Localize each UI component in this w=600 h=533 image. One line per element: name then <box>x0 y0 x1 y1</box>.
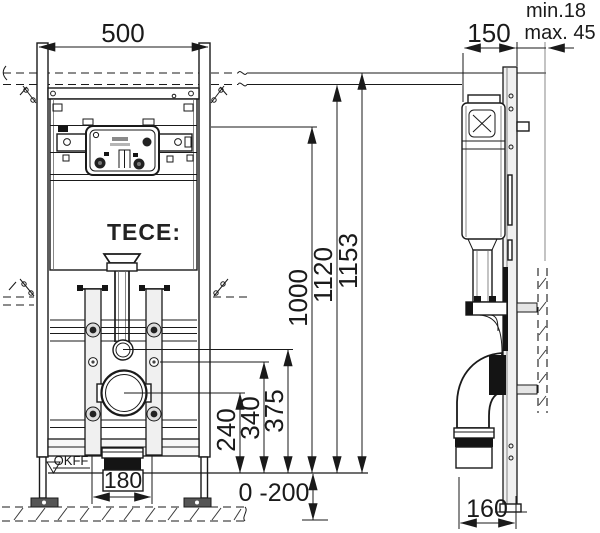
technical-drawing: TECE: <box>0 0 600 533</box>
dim-label-wall-max: max. 45 <box>524 22 595 44</box>
brand-logo: TECE: <box>107 219 181 245</box>
dim-label-height-bracket: 1000 <box>283 269 313 327</box>
side-view <box>454 42 547 512</box>
side-drain-elbow <box>454 353 506 468</box>
dim-label-drain: 240 <box>211 408 241 451</box>
technical-drawing-page: TECE: <box>0 0 600 533</box>
dim-front-width: 500 <box>39 18 208 48</box>
okff-label: OKFF <box>54 453 89 468</box>
wall-hatching-side <box>539 278 546 405</box>
dim-label-front-width: 500 <box>101 18 144 48</box>
ground-hatching <box>14 508 241 520</box>
dim-label-outlet-depth: 160 <box>466 495 508 523</box>
floor-level-mark: OKFF <box>47 453 90 473</box>
dim-label-outlet-width: 180 <box>104 467 142 493</box>
flush-pipe <box>104 254 140 342</box>
wall-anchor-top-right <box>211 86 227 103</box>
cistern: TECE: <box>50 99 197 342</box>
dim-label-side-depth: 150 <box>467 18 510 48</box>
side-cistern <box>462 95 507 353</box>
dim-floor-adjust: 0 -200 <box>239 474 328 520</box>
dim-side-depth: 150 min.18 max. 45 <box>463 0 596 102</box>
dim-label-wall-min: min.18 <box>526 0 586 22</box>
dim-label-floor-adjust: 0 -200 <box>239 479 310 507</box>
wall-anchor-top-left <box>20 86 36 103</box>
inspection-opening <box>86 126 159 175</box>
wall-anchor-mid-left <box>3 279 34 305</box>
wall-section-side <box>538 42 547 413</box>
wall-anchor-mid-right <box>213 279 248 297</box>
